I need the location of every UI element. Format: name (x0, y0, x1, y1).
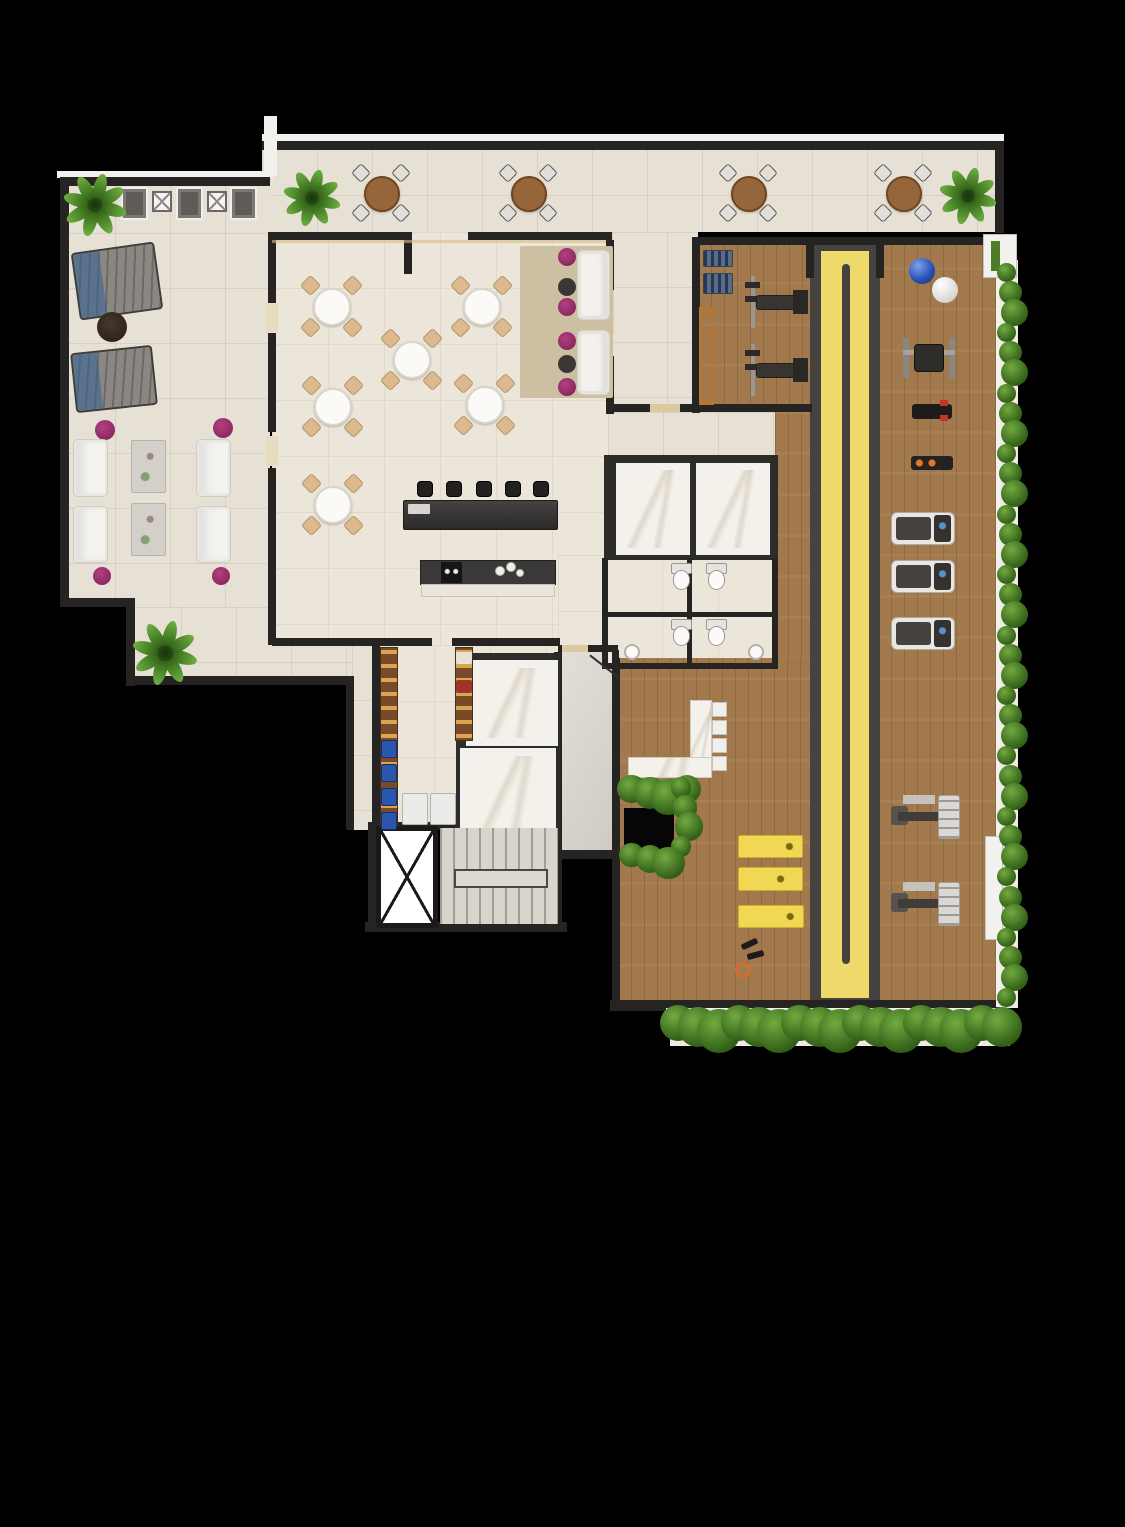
part (454, 869, 548, 887)
ladder-shelf (699, 307, 714, 405)
sink (624, 644, 640, 660)
machine-rail (903, 338, 909, 378)
wall-top-main (262, 141, 1002, 150)
part (393, 341, 431, 379)
wall-track-stub-left (806, 240, 814, 278)
multi-gym-frame (938, 882, 960, 926)
wall-rest-stub (404, 232, 412, 274)
pouf-purple (93, 567, 111, 585)
part (673, 570, 691, 590)
ottoman-round (97, 312, 127, 342)
part (1001, 299, 1028, 326)
exercise-ball-white (932, 277, 958, 303)
side-table (152, 191, 172, 212)
part (314, 486, 352, 524)
daybed (73, 506, 108, 563)
part (1001, 662, 1028, 689)
weight-bench (756, 363, 797, 378)
part (1001, 904, 1028, 931)
part (997, 384, 1016, 403)
part (896, 622, 931, 645)
bar-cups (506, 562, 516, 572)
sun-lounger (70, 345, 158, 413)
bar-stool (446, 481, 462, 497)
pouf-purple (212, 567, 230, 585)
palm-plant (134, 622, 196, 684)
part (1001, 541, 1028, 568)
part (88, 198, 103, 213)
yoga-mat (738, 905, 804, 928)
wall-rest-top-a (272, 232, 410, 240)
elevator-1-cab (623, 470, 683, 548)
toilet (706, 563, 725, 588)
sun-lounger (71, 241, 164, 320)
gym-mid-strip-floor (775, 408, 812, 660)
elevator-2-cab (703, 470, 763, 548)
dining-set-indoor (451, 276, 510, 335)
part (305, 191, 319, 205)
part (452, 372, 473, 393)
blue-crate (381, 740, 397, 758)
part (1001, 722, 1028, 749)
dining-set-indoor (302, 474, 361, 533)
low-table (131, 440, 166, 493)
kitchen-appliance (430, 793, 456, 825)
service-shaft-x (376, 826, 438, 928)
wall-rest-top-b (468, 232, 612, 240)
floor-plan-canvas (0, 0, 1125, 1527)
pouf-purple (213, 418, 233, 438)
cubby-stool (712, 756, 727, 771)
staircase (440, 828, 558, 924)
part (997, 323, 1016, 342)
part (1001, 964, 1028, 991)
low-table (131, 503, 166, 556)
pouf-dark (558, 278, 576, 296)
blue-crate (381, 764, 397, 782)
palm-plant (284, 170, 340, 226)
pouf-purple (95, 420, 115, 440)
vestibule-floor (558, 555, 608, 647)
pouf-purple (558, 332, 576, 350)
dining-set-terrace (874, 164, 930, 220)
treadmill (891, 560, 955, 593)
yoga-mat (738, 835, 803, 858)
part (934, 563, 951, 590)
daybed (196, 439, 231, 497)
part (1001, 601, 1028, 628)
wall-kitchen-left (372, 638, 380, 834)
part (997, 746, 1016, 765)
part (466, 386, 504, 424)
wall-tl-left (60, 177, 69, 607)
wall-top-right (995, 141, 1004, 233)
part (997, 807, 1016, 826)
part (997, 444, 1016, 463)
part (997, 505, 1016, 524)
part (299, 274, 320, 295)
part (511, 176, 547, 212)
hedge-right (1000, 262, 1020, 1008)
wall-stair-left (368, 824, 376, 932)
part (313, 288, 351, 326)
wall-gym-top (692, 237, 1004, 245)
part (997, 928, 1016, 947)
running-track-center-line (842, 264, 850, 964)
toilet (671, 619, 690, 644)
door-threshold-corr-top (562, 645, 588, 652)
bar-stool (476, 481, 492, 497)
part (673, 626, 691, 646)
wall-track-stub-right (876, 240, 884, 278)
armchair (121, 187, 148, 220)
kitchen-appliance (402, 793, 428, 825)
part (708, 570, 726, 590)
gold-trim-restaurant (272, 240, 608, 243)
pouf-purple (558, 378, 576, 396)
elevator-3-cab (474, 668, 550, 738)
part (157, 645, 173, 661)
wall-top-white (262, 134, 1004, 141)
multi-gym-top (903, 882, 935, 891)
door-threshold-lobby (650, 404, 680, 412)
wall-rest-bottom (272, 638, 382, 646)
treadmill (891, 617, 955, 650)
part (934, 515, 951, 542)
cubby-stool (712, 702, 727, 717)
part (1001, 359, 1028, 386)
elevator-4-cab (468, 756, 548, 828)
wall-kitchen-top-a (372, 638, 432, 646)
part (351, 163, 371, 183)
resistance-ring (735, 962, 751, 978)
wall-gym-lower-left (612, 658, 620, 1008)
part (731, 176, 767, 212)
part (72, 353, 103, 411)
daybed (73, 439, 108, 497)
part (1001, 783, 1028, 810)
trainer-hook (940, 400, 948, 406)
cubby-stool (712, 720, 727, 735)
hedge-planter-low (622, 846, 678, 872)
part (997, 263, 1016, 282)
part (1001, 420, 1028, 447)
part (934, 620, 951, 647)
machine-rail (949, 338, 955, 378)
side-table (207, 191, 227, 212)
coffee-machine (441, 562, 462, 583)
palm-plant (65, 175, 125, 235)
part (73, 251, 107, 318)
wall-white-column (264, 116, 277, 176)
part (652, 847, 685, 880)
palm-plant (940, 168, 996, 224)
exercise-ball-blue (909, 258, 935, 284)
pouf-purple (558, 248, 576, 266)
part (997, 565, 1016, 584)
part (498, 163, 518, 183)
part (1001, 480, 1028, 507)
entry-bench-marble (628, 757, 712, 778)
part (300, 472, 321, 493)
cubby-stool (712, 738, 727, 753)
door-threshold-left-2 (266, 436, 278, 466)
bar-stool (533, 481, 549, 497)
door-threshold-left-1 (266, 303, 278, 333)
toilet (671, 563, 690, 588)
sofa (577, 330, 610, 395)
wall-tl-step-h (60, 598, 134, 607)
terrace-corridor-floor (612, 232, 698, 414)
multi-gym-frame (938, 795, 960, 839)
part (708, 626, 726, 646)
dining-set-indoor (381, 329, 440, 388)
treadmill (891, 512, 955, 545)
back-counter-marble (421, 584, 555, 597)
part (997, 867, 1016, 886)
sofa (577, 250, 610, 320)
part (1001, 843, 1028, 870)
barbell-plate (745, 282, 760, 288)
wall-rest-left-b (268, 332, 276, 432)
part (379, 327, 400, 348)
armchair (230, 187, 257, 220)
wall-corr-bottom (554, 850, 618, 859)
part (982, 1007, 1022, 1047)
dining-set-indoor (454, 374, 513, 433)
blue-crate (381, 812, 397, 830)
hedge-planter-right (674, 778, 696, 856)
part (364, 176, 400, 212)
pouf-dark (558, 355, 576, 373)
wall-strip-v (346, 683, 354, 830)
sink (748, 644, 764, 660)
dining-set-terrace (352, 164, 408, 220)
bar-cups (516, 569, 524, 577)
trainer-device (911, 456, 953, 470)
part (314, 388, 352, 426)
toilet (706, 619, 725, 644)
part (718, 163, 738, 183)
wall-kitchen-top-b (452, 638, 560, 646)
multi-gym-top (903, 795, 935, 804)
part (449, 274, 470, 295)
bar-stool (505, 481, 521, 497)
part (300, 374, 321, 395)
part (997, 686, 1016, 705)
dining-set-indoor (302, 376, 361, 435)
corridor-floor (560, 645, 618, 857)
trainer-hook (940, 415, 948, 421)
part (961, 189, 975, 203)
wall-rest-left-c (268, 468, 276, 645)
dumbbell-rack (703, 250, 733, 267)
dining-set-indoor (301, 276, 360, 335)
bar-cups (495, 566, 505, 576)
bar-counter-detail (408, 504, 430, 514)
part (997, 988, 1016, 1007)
blue-crate (381, 788, 397, 806)
pouf-purple (558, 298, 576, 316)
part (873, 163, 893, 183)
shelf-box-white (456, 652, 472, 664)
machine-body (914, 344, 944, 372)
barbell-plate (745, 350, 760, 356)
part (997, 626, 1016, 645)
dining-set-terrace (719, 164, 775, 220)
hedge-bottom (668, 1008, 1012, 1046)
part (463, 288, 501, 326)
shelf-crate-red (456, 680, 472, 693)
part (886, 176, 922, 212)
bench-rack (793, 358, 808, 382)
bench-rack (793, 290, 808, 314)
part (896, 565, 931, 588)
daybed (196, 506, 231, 563)
wall-bath-bottom (602, 663, 778, 669)
wall-weights-bottom (608, 404, 812, 412)
yoga-mat (738, 867, 803, 891)
weight-bench (756, 295, 797, 310)
bar-stool (417, 481, 433, 497)
dining-set-terrace (499, 164, 555, 220)
part (896, 517, 931, 540)
dumbbell-rack (703, 273, 733, 294)
armchair (176, 187, 203, 220)
